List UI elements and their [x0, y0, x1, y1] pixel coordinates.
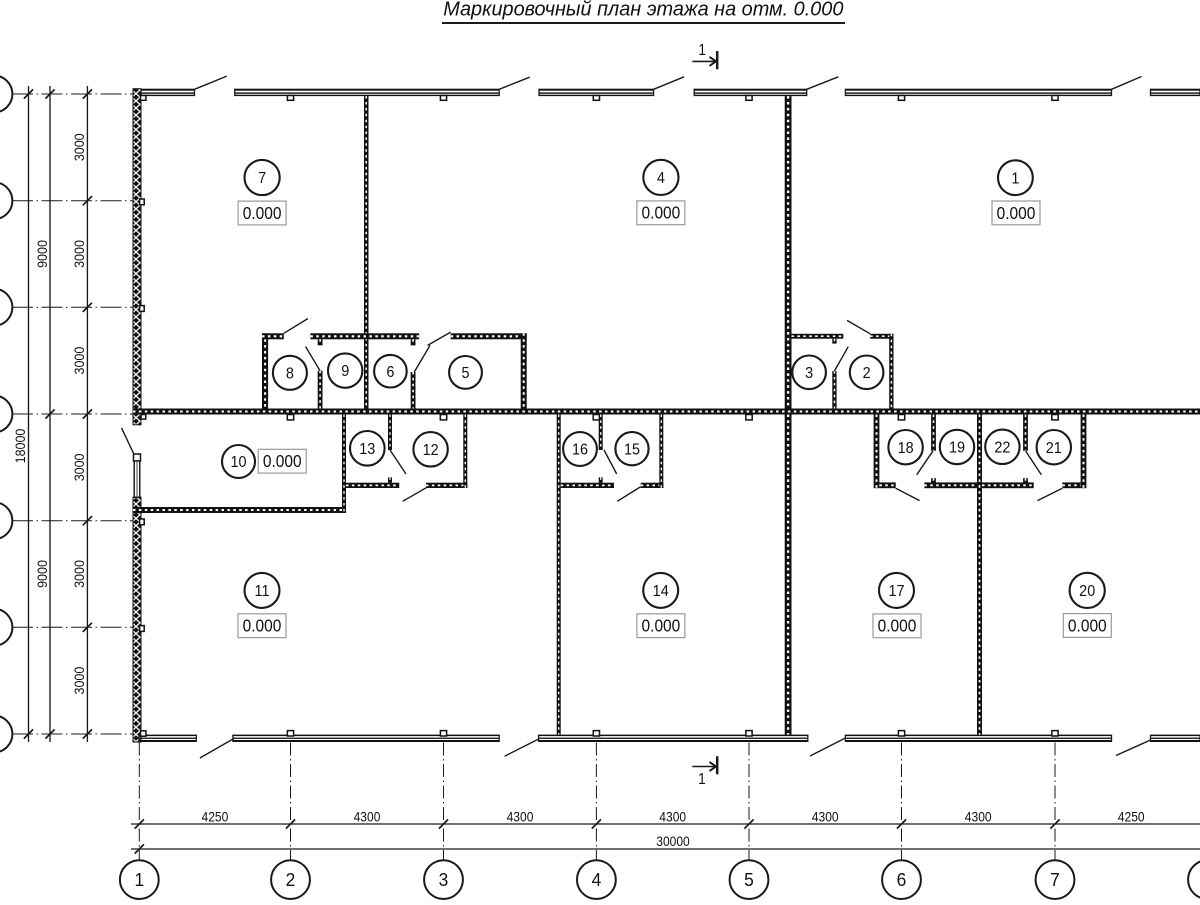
- svg-text:3000: 3000: [71, 133, 87, 161]
- svg-text:4: 4: [592, 870, 602, 891]
- svg-text:3: 3: [805, 364, 813, 382]
- svg-text:4: 4: [657, 169, 665, 187]
- svg-text:9000: 9000: [34, 240, 50, 268]
- svg-text:4300: 4300: [507, 808, 534, 824]
- svg-text:7: 7: [258, 170, 266, 188]
- svg-text:0.000: 0.000: [642, 204, 681, 223]
- svg-text:6: 6: [897, 870, 907, 891]
- svg-text:8: 8: [286, 365, 294, 383]
- svg-text:5: 5: [744, 870, 754, 891]
- svg-text:4250: 4250: [201, 808, 228, 824]
- svg-text:3: 3: [439, 870, 449, 891]
- svg-text:5: 5: [461, 364, 469, 382]
- svg-text:0.000: 0.000: [1068, 617, 1107, 636]
- svg-text:15: 15: [624, 441, 640, 459]
- svg-text:0.000: 0.000: [243, 617, 282, 636]
- svg-text:0.000: 0.000: [642, 617, 681, 636]
- svg-text:12: 12: [423, 441, 439, 459]
- svg-text:30000: 30000: [656, 833, 690, 849]
- svg-text:9000: 9000: [34, 560, 50, 588]
- svg-text:1: 1: [1011, 170, 1019, 188]
- svg-text:17: 17: [888, 582, 904, 600]
- svg-text:18000: 18000: [12, 429, 28, 464]
- svg-text:2: 2: [286, 870, 296, 891]
- svg-text:4300: 4300: [659, 808, 686, 824]
- svg-text:11: 11: [255, 582, 270, 600]
- svg-text:20: 20: [1079, 582, 1095, 600]
- svg-text:Маркировочный план этажа на от: Маркировочный план этажа на отм. 0.000: [443, 0, 844, 21]
- svg-text:22: 22: [994, 439, 1010, 457]
- svg-text:3000: 3000: [71, 454, 87, 482]
- svg-text:9: 9: [341, 363, 349, 381]
- svg-text:21: 21: [1046, 439, 1062, 457]
- svg-text:1: 1: [698, 771, 706, 788]
- svg-text:10: 10: [230, 454, 246, 472]
- svg-text:3000: 3000: [71, 560, 87, 588]
- svg-text:0.000: 0.000: [878, 617, 917, 636]
- svg-text:4300: 4300: [812, 808, 839, 824]
- svg-text:6: 6: [386, 363, 394, 381]
- svg-text:0.000: 0.000: [243, 204, 282, 223]
- svg-text:16: 16: [572, 441, 588, 459]
- svg-text:13: 13: [359, 440, 375, 458]
- svg-text:0.000: 0.000: [997, 204, 1036, 223]
- svg-text:3000: 3000: [71, 240, 87, 268]
- svg-text:1: 1: [134, 870, 144, 891]
- svg-text:1: 1: [698, 42, 706, 59]
- svg-text:14: 14: [653, 582, 669, 600]
- svg-text:3000: 3000: [71, 347, 87, 375]
- svg-text:18: 18: [898, 439, 914, 457]
- svg-text:0.000: 0.000: [263, 452, 302, 471]
- svg-text:19: 19: [949, 439, 965, 457]
- svg-text:7: 7: [1050, 870, 1060, 891]
- svg-text:4300: 4300: [965, 808, 992, 824]
- svg-text:3000: 3000: [71, 667, 87, 695]
- svg-text:4300: 4300: [354, 808, 381, 824]
- svg-text:2: 2: [863, 364, 871, 382]
- svg-text:4250: 4250: [1118, 808, 1145, 824]
